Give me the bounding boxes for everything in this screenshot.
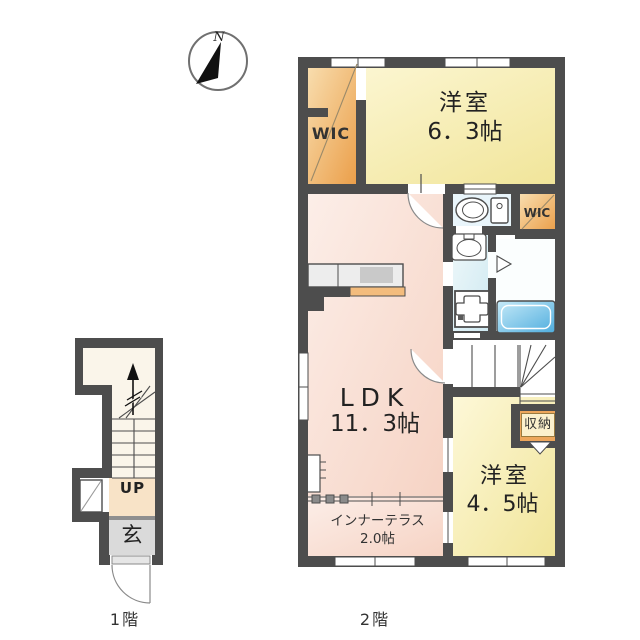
entrance-label: 玄	[117, 524, 147, 547]
storage-label: 収納	[521, 413, 555, 437]
stair-hall-floor	[452, 340, 555, 387]
bedroom2-name: 洋室	[455, 465, 555, 489]
stove-icon	[360, 267, 393, 283]
floor-plan-image: 洋室 6．3帖 WIC WIC LDK 11．3帖 収納 洋室 4．5帖 インナ…	[0, 0, 640, 640]
entrance-door	[110, 555, 152, 603]
compass-north-label: N	[209, 31, 229, 45]
ldk-name: LDK	[325, 384, 425, 412]
hall-door-opening	[443, 349, 453, 384]
wic1-label: WIC	[306, 125, 356, 143]
counter-edge	[350, 287, 405, 296]
bedroom1-area: 6．3帖	[385, 120, 545, 145]
washroom-door-opening	[443, 262, 453, 286]
terrace-name: インナーテラス	[315, 514, 440, 529]
ldk-area: 11．3帖	[300, 412, 450, 437]
floor2-caption: 2階	[340, 611, 410, 629]
ldk-floor	[308, 194, 443, 496]
wic2-label: WIC	[517, 207, 557, 220]
kitchen-wall-stub2	[306, 297, 324, 311]
stairs-up-label: UP	[110, 480, 155, 497]
shoe-closet	[80, 480, 102, 512]
toilet-icon	[456, 198, 508, 223]
kitchen-wall-stub	[306, 287, 350, 297]
floor1-caption: 1階	[90, 611, 160, 629]
washbasin-icon	[452, 234, 486, 260]
bedroom1-name: 洋室	[400, 91, 530, 116]
washing-machine-pan-icon	[455, 291, 489, 327]
terrace-area: 2.0帖	[315, 532, 440, 547]
bedroom1-door-opening	[408, 184, 445, 194]
entrance-door-arc	[112, 565, 150, 603]
washroom-vent	[454, 333, 480, 338]
bedroom2-area: 4．5帖	[445, 493, 560, 517]
bath-door-opening	[488, 252, 496, 278]
entrance-step	[109, 516, 155, 520]
wic1-doorway	[356, 67, 366, 100]
bathtub-icon	[497, 301, 555, 333]
